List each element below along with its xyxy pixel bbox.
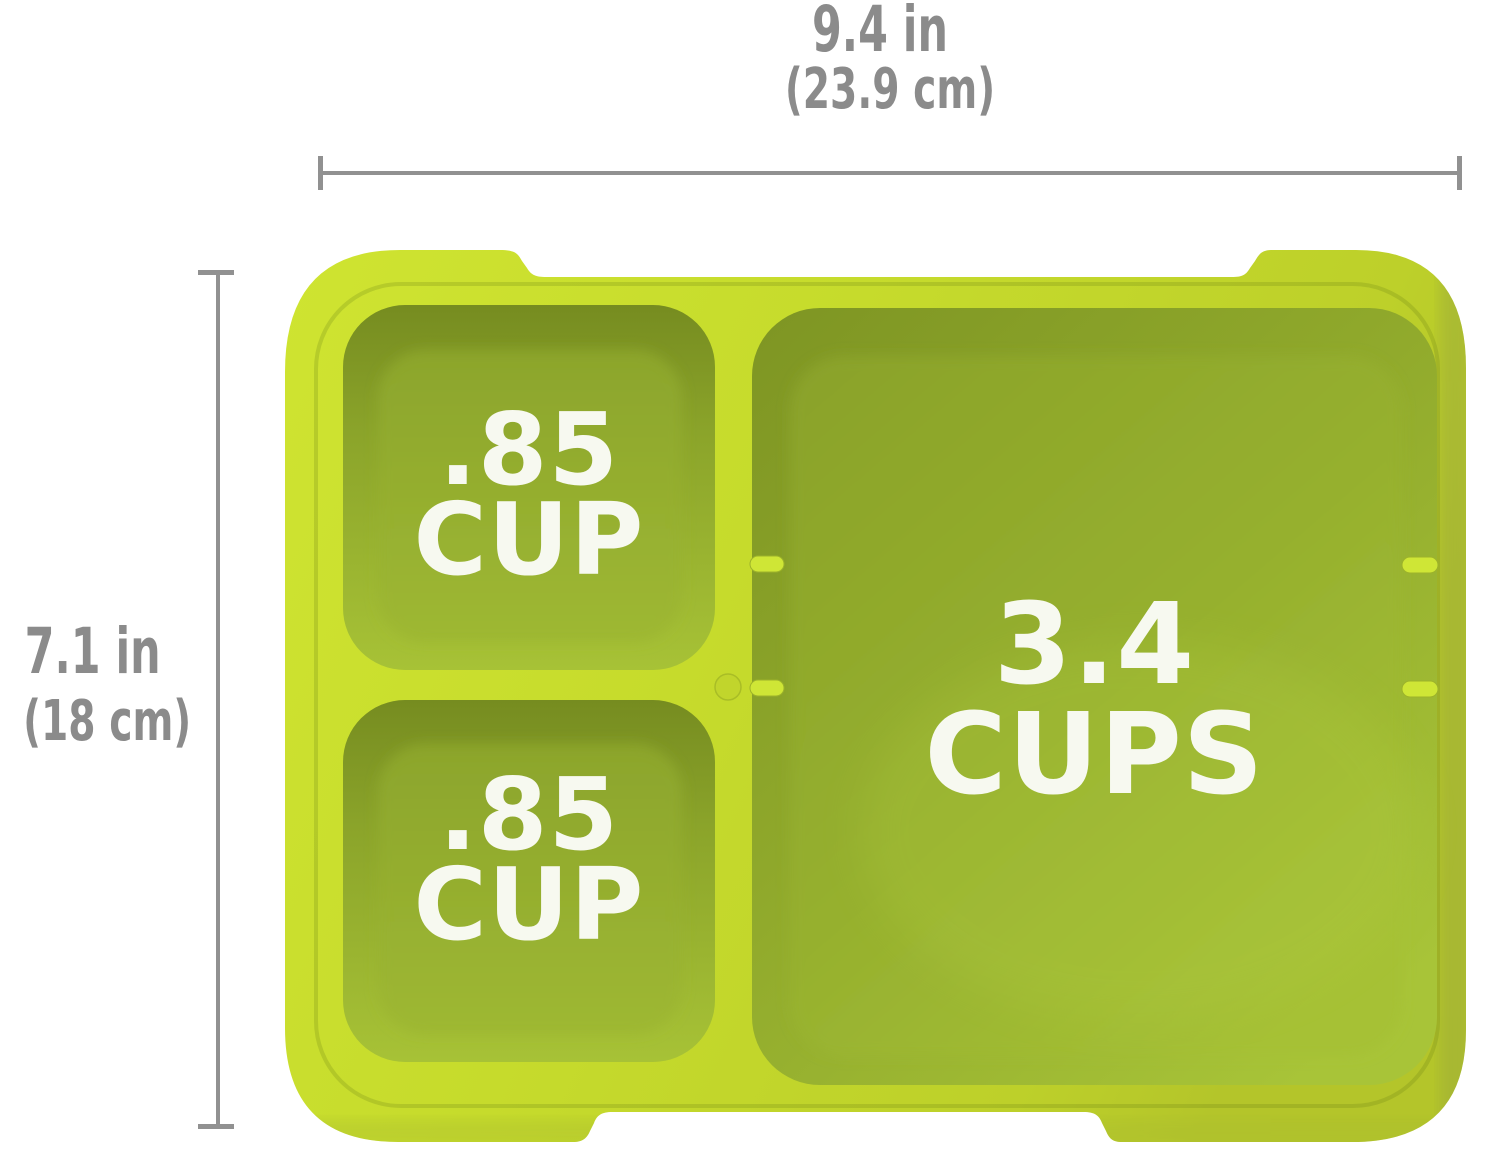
capacity-label-small-top: .85 CUP [343, 405, 715, 585]
width-dimension-cm: (23.9 cm) [750, 60, 1030, 120]
right-wall-clip-upper [1402, 557, 1438, 573]
height-dimension-tick-top [198, 270, 234, 275]
width-dimension-tick-left [318, 156, 323, 190]
capacity-label-small-bottom: .85 CUP [343, 770, 715, 950]
width-dimension-inches: 9.4 in [744, 0, 1016, 62]
height-dimension-line [216, 272, 220, 1127]
divider-clip-upper [750, 556, 784, 572]
height-dimension-tick-bottom [198, 1124, 234, 1129]
height-dimension-inches: 7.1 in [25, 620, 130, 684]
height-dimension-cm: (18 cm) [23, 692, 131, 752]
capacity-label-large: 3.4 CUPS [752, 590, 1437, 810]
capacity-unit: CUP [343, 495, 715, 585]
width-dimension-tick-right [1457, 156, 1462, 190]
capacity-unit: CUPS [752, 700, 1437, 810]
width-dimension-line [321, 171, 1459, 175]
divider-dimple [715, 674, 741, 700]
product-dimension-diagram: 9.4 in (23.9 cm) 7.1 in (18 cm) .85 CUP … [0, 0, 1500, 1154]
capacity-unit: CUP [343, 860, 715, 950]
capacity-value: 3.4 [752, 590, 1437, 700]
